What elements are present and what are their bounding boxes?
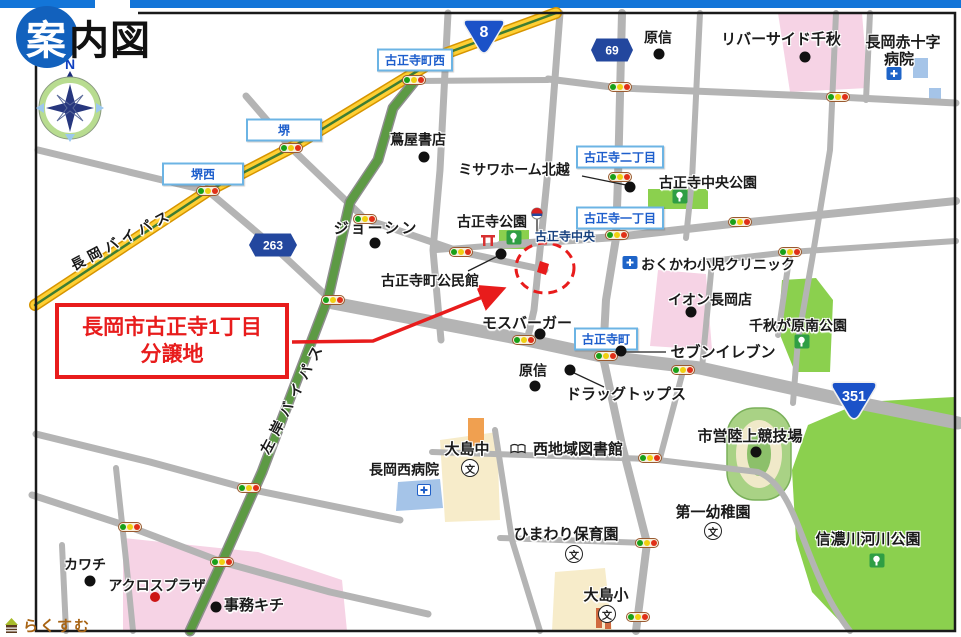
title-char1: 案: [26, 8, 67, 66]
logo-house-icon: [3, 617, 20, 634]
page-title: 案内図: [16, 8, 139, 66]
logo-text: らくすむ: [23, 615, 91, 636]
brand-logo: らくすむ: [3, 615, 91, 636]
site-callout-line2: 分譲地: [141, 341, 204, 368]
guide-map-page: 案内図 N 長岡バイパス左岸バイパス古正寺中央蔦屋書店ミサワホーム北越原信リバー…: [0, 0, 961, 637]
title-rest: 内図: [69, 8, 151, 66]
site-callout-box: 長岡市古正寺1丁目 分譲地: [55, 303, 289, 379]
compass-rose: N: [32, 56, 108, 149]
site-callout-line1: 長岡市古正寺1丁目: [82, 314, 262, 341]
